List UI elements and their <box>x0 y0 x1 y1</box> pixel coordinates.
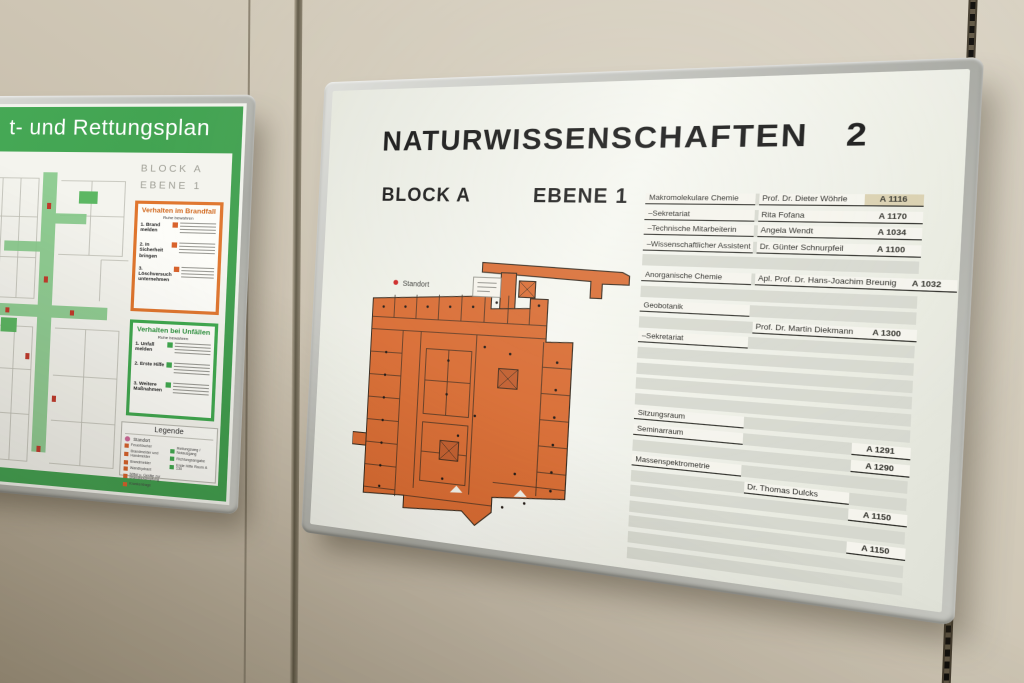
building-title-text: NATURWISSENSCHAFTEN <box>382 117 810 157</box>
directory-entry-name: Angela Wendt <box>758 226 863 240</box>
directory-room-chip: A 1150 <box>846 542 905 562</box>
standort-label: Standort <box>133 437 150 444</box>
plan-legend-boxlet <box>473 277 502 297</box>
legend-item-label: Brandmelder <box>130 460 151 465</box>
directory-room-chip: A 1032 <box>896 278 957 293</box>
fire-instructions-box: Verhalten im Brandfall Ruhe bewahren 1. … <box>130 201 223 316</box>
directory-entry-name: Prof. Dr. Dieter Wöhrle <box>759 194 864 207</box>
fire-icon <box>172 242 178 247</box>
building-subtitle: BLOCK A EBENE 1 <box>381 184 629 208</box>
rescue-legend-icon <box>170 457 174 462</box>
wall-groove <box>290 0 303 683</box>
left-board-block-label: BLOCK A <box>141 163 204 175</box>
directory-entry-label: –Sekretariat <box>638 331 748 349</box>
rescue-legend-icon <box>170 449 174 454</box>
fire-box-item: 1. Brand melden <box>140 222 216 237</box>
fire-legend-icon <box>124 460 128 465</box>
legend-item: Krankentrage <box>123 482 165 490</box>
directory-entry-label: –Wissenschaftlicher Assistent <box>643 239 754 253</box>
legend-item-label: Krankentrage <box>129 483 151 489</box>
first-aid-icon <box>165 382 171 388</box>
block-label: BLOCK A <box>381 184 471 206</box>
orange-floor-plan: Standort <box>348 252 634 560</box>
fire-box-item-label: 2. In Sicherheit bringen <box>139 241 170 259</box>
accident-box-item: 2. Erste Hilfe <box>134 360 210 377</box>
building-title: NATURWISSENSCHAFTEN 2 <box>382 116 870 158</box>
rescue-plan-sheet: t- und Rettungsplan <box>0 103 247 505</box>
escape-floor-plan <box>0 155 133 473</box>
directory-entry-label: Makromolekulare Chemie <box>645 193 756 205</box>
rescue-plan-board: t- und Rettungsplan <box>0 95 256 515</box>
fine-print-lines <box>174 363 210 378</box>
fire-icon <box>172 222 178 227</box>
directory-entry-name: Apl. Prof. Dr. Hans-Joachim Breunig <box>755 274 897 291</box>
wall-photo: { "left_board": { "title": "t- und Rettu… <box>0 0 1024 683</box>
accident-box-item-label: 3. Weitere Maßnahmen <box>133 380 163 393</box>
building-title-number: 2 <box>845 116 870 154</box>
rescue-plan-body: BLOCK A EBENE 1 Verhalten im Brandfall R… <box>0 151 232 486</box>
fine-print-lines <box>181 267 214 281</box>
directory-room-chip: A 1100 <box>861 244 921 258</box>
fire-box-item-label: 1. Brand melden <box>140 222 170 234</box>
directory-list: Makromolekulare Chemie Prof. Dr. Dieter … <box>626 193 922 600</box>
legend-item: Erste Hilfe Raum A 130 <box>169 463 212 474</box>
fine-print-lines <box>173 383 209 398</box>
standort-dot-icon <box>125 436 131 442</box>
fire-legend-icon <box>123 466 127 471</box>
rescue-legend-icon <box>169 465 173 470</box>
fire-icon <box>174 266 180 271</box>
directory-entry-label: –Sekretariat <box>644 208 755 221</box>
fine-print-lines <box>174 343 210 358</box>
directory-entry-label: Geobotanik <box>640 301 750 318</box>
directory-entry-label: Anorganische Chemie <box>641 270 751 285</box>
rescue-plan-title: t- und Rettungsplan <box>9 116 211 141</box>
accident-box-item: 3. Weitere Maßnahmen <box>133 380 209 397</box>
accident-box-item: 1. Unfall melden <box>135 341 211 358</box>
first-aid-icon <box>167 342 173 348</box>
directory-entry-name: Rita Fofana <box>758 210 863 223</box>
fire-legend-icon <box>123 482 127 487</box>
directory-room-chip: A 1291 <box>851 443 911 461</box>
directory-room-chip: A 1034 <box>862 227 922 240</box>
directory-board-face: NATURWISSENSCHAFTEN 2 BLOCK A EBENE 1 <box>310 69 970 613</box>
fire-box-item-label: 3. Löschversuch unternehmen <box>138 265 172 283</box>
accident-box-item-label: 1. Unfall melden <box>135 341 165 354</box>
directory-entry-label: –Technische Mitarbeiterin <box>644 224 755 238</box>
fire-box-item: 3. Löschversuch unternehmen <box>138 265 214 285</box>
fire-legend-icon <box>123 474 127 479</box>
directory-room-chip: A 1300 <box>857 327 917 342</box>
first-aid-icon <box>166 362 172 368</box>
rescue-plan-green-border: t- und Rettungsplan <box>0 106 243 501</box>
directory-row: Makromolekulare Chemie Prof. Dr. Dieter … <box>645 193 923 207</box>
directory-room-chip: A 1116 <box>864 194 924 207</box>
accident-instructions-box: Verhalten bei Unfällen Ruhe bewahren 1. … <box>126 319 218 421</box>
fire-legend-icon <box>124 451 128 456</box>
legend-box: Legende Standort Feuerlöscher <box>119 421 218 483</box>
directory-board: NATURWISSENSCHAFTEN 2 BLOCK A EBENE 1 <box>301 57 984 626</box>
directory-entry-name: Prof. Dr. Martin Diekmann <box>753 322 858 339</box>
directory-room-chip: A 1170 <box>863 211 923 224</box>
fine-print-lines <box>180 223 216 237</box>
directory-entry-name: Dr. Günter Schnurpfeil <box>757 242 862 256</box>
legend-item-label: Erste Hilfe Raum A 130 <box>176 464 212 475</box>
fire-legend-icon <box>124 443 128 448</box>
legend-item-label: Rettungsweg / Notausgang <box>177 447 213 457</box>
fine-print-lines <box>179 243 215 257</box>
directory-room-chip: A 1150 <box>847 509 906 528</box>
accident-box-item-label: 2. Erste Hilfe <box>134 360 164 367</box>
directory-room-chip: A 1290 <box>850 459 910 477</box>
directory-row: –Technische Mitarbeiterin Angela Wendt A… <box>644 224 921 241</box>
fire-box-item: 2. In Sicherheit bringen <box>139 241 215 260</box>
left-board-level-label: EBENE 1 <box>140 180 202 193</box>
standort-dot-icon <box>393 280 398 285</box>
level-label: EBENE 1 <box>532 185 629 209</box>
directory-row: –Sekretariat Rita Fofana A 1170 <box>644 208 922 223</box>
standort-text: Standort <box>402 280 429 289</box>
